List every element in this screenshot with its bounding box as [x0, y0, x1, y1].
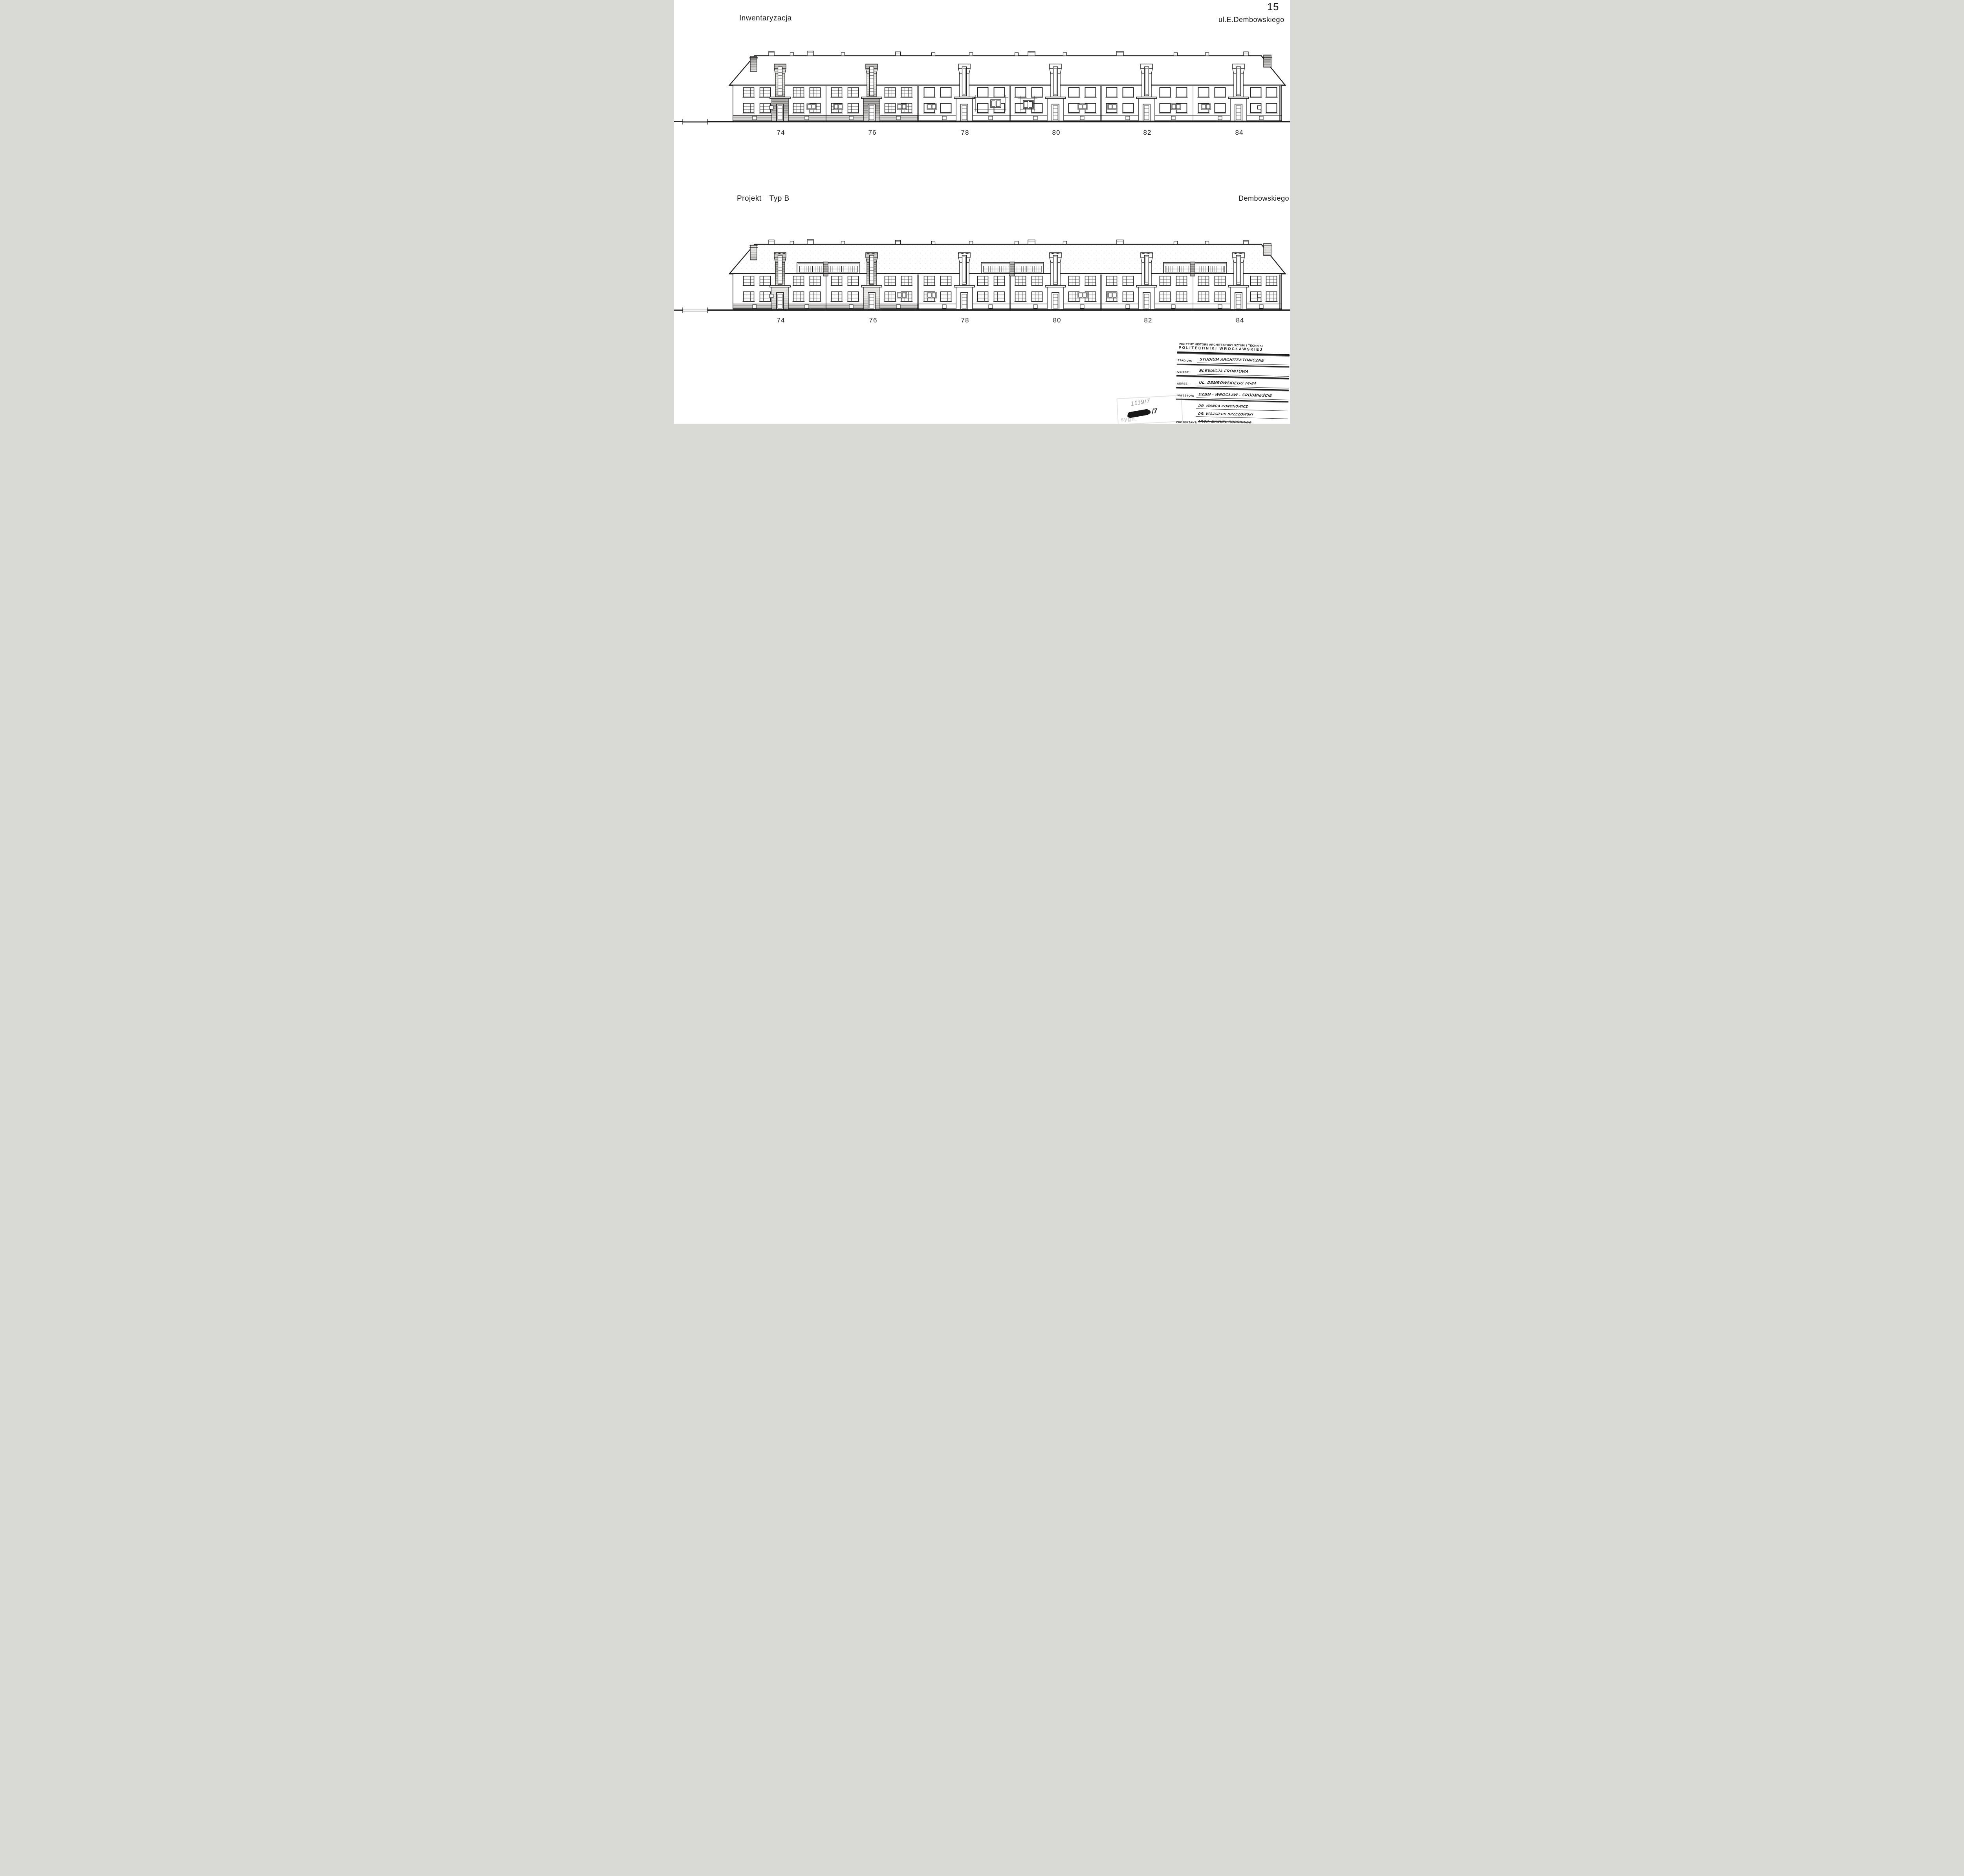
stadium-value: STUDIUM ARCHITEKTONICZNE — [1199, 357, 1264, 363]
adres-label: ADRES: — [1177, 383, 1196, 386]
drawing-sheet: 15 Inwentaryzacja ul.E.Dembowskiego 74 7… — [674, 0, 1290, 424]
bottom-drawing-street-label: Dembowskiego — [1238, 194, 1289, 203]
house-number: 74 — [777, 317, 785, 324]
redaction-blob — [1127, 409, 1150, 418]
bottom-drawing-type-label: Typ B — [769, 194, 790, 203]
title-block-row-projektant: PROJEKTANT: DR. WANDA KONONOWICZ DR. WOJ… — [1175, 400, 1288, 424]
house-number: 84 — [1236, 317, 1244, 324]
house-number: 84 — [1235, 129, 1244, 137]
pencil-inventory-number: 1119/7 — [1130, 397, 1151, 407]
top-drawing-street-label: ul.E.Dembowskiego — [1218, 16, 1284, 24]
house-number: 82 — [1144, 317, 1152, 324]
archive-stamp: sygn. 1119/7 /7 — [1116, 395, 1183, 424]
elevation-projekt-drawing — [674, 216, 1290, 313]
elevation-inwentaryzacja-drawing — [674, 27, 1290, 125]
projektant-value-2: DR. WOJCIECH BRZEZOWSKI — [1198, 412, 1254, 416]
bottom-drawing-title: ProjektTyp B — [737, 194, 790, 203]
adres-value: UL. DEMBOWSKIEGO 74-84 — [1198, 381, 1257, 386]
institute-name: INSTYTUT HISTORII ARCHITEKTURY SZTUKI I … — [1178, 342, 1290, 353]
top-drawing-title: Inwentaryzacja — [739, 14, 792, 23]
bottom-drawing-title-main: Projekt — [737, 194, 762, 203]
house-number: 82 — [1143, 129, 1152, 137]
house-number: 80 — [1053, 317, 1061, 324]
house-number: 80 — [1052, 129, 1061, 137]
obiekt-value: ELEWACJA FRONTOWA — [1199, 369, 1249, 374]
ink-inventory-number: /7 — [1151, 407, 1158, 415]
projektant-value-1: DR. WANDA KONONOWICZ — [1198, 404, 1248, 408]
sheet-number: 15 — [1267, 1, 1279, 13]
obiekt-label: OBIEKT: — [1177, 371, 1197, 374]
house-number: 76 — [869, 317, 878, 324]
projektant-value-3-crossed-out: ARCH. MANUEL RODRIGUEZ — [1198, 419, 1251, 424]
inwestor-value: DZBM - WROCŁAW - ŚRÓDMIEŚCIE — [1198, 392, 1273, 398]
title-block: INSTYTUT HISTORII ARCHITEKTURY SZTUKI I … — [1175, 341, 1290, 424]
house-number: 78 — [961, 129, 969, 137]
house-number: 76 — [868, 129, 877, 137]
stadium-label: STADIUM: — [1178, 359, 1197, 363]
house-number: 74 — [777, 129, 785, 137]
house-number: 78 — [961, 317, 969, 324]
